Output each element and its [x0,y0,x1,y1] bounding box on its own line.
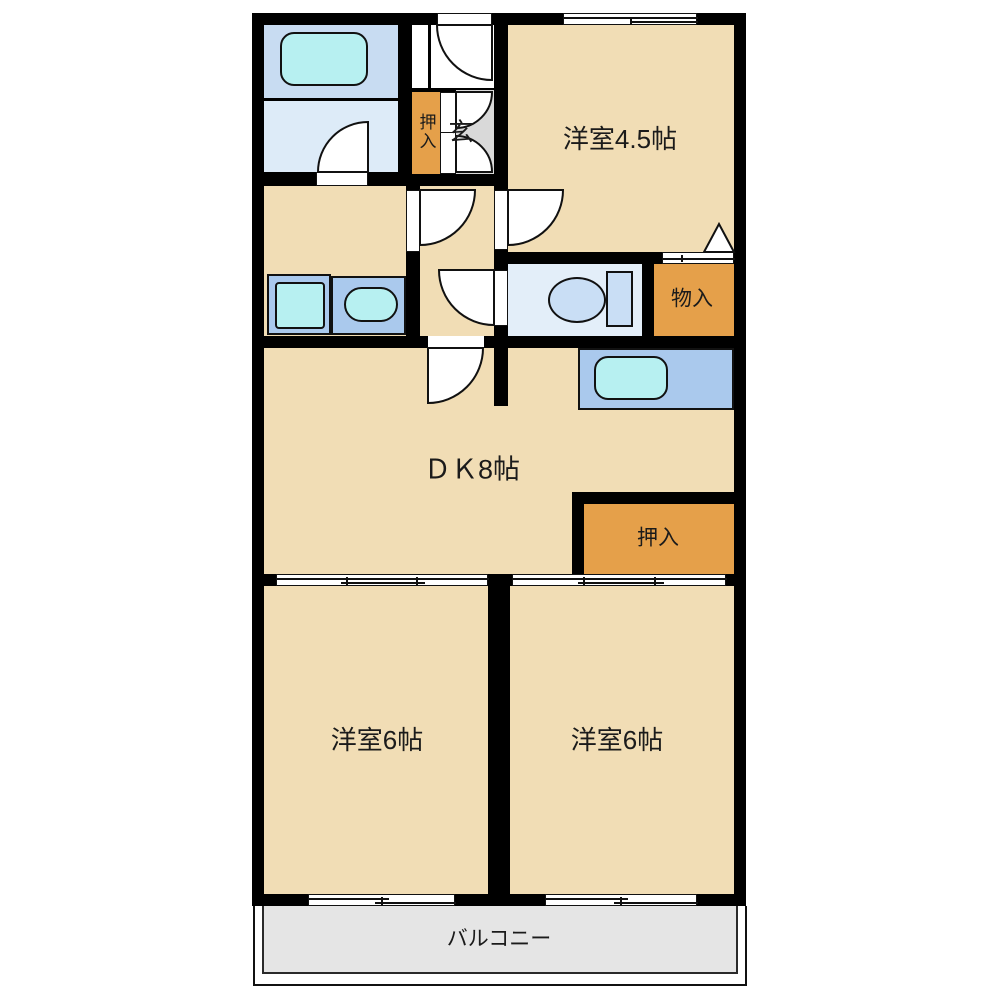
door-arc-front-entrance [437,25,492,80]
door-arc-bathroom [318,122,368,172]
label-dk: ＤＫ8帖 [424,457,520,484]
label-closet-upper: 押入 [418,113,435,151]
vent-triangle-marker [704,224,734,252]
label-western-room-45: 洋室4.5帖 [563,126,677,152]
label-entrance: 玄 [448,121,473,146]
floor-plan: 洋室4.5帖 玄 押入 物入 ＤＫ8帖 押入 洋室6帖 洋室6帖 バルコニー [0,0,1000,1000]
door-arcs-layer [0,0,1000,1000]
door-arc-toilet [439,270,494,325]
label-western-room-6-left: 洋室6帖 [331,727,423,753]
label-western-room-6-right: 洋室6帖 [571,727,663,753]
door-arc-dk [428,348,483,403]
label-storage: 物入 [671,289,713,310]
label-balcony: バルコニー [447,929,552,950]
door-arc-room45 [508,190,563,245]
door-arc-laundry [420,190,475,245]
label-closet-dk: 押入 [637,528,679,549]
